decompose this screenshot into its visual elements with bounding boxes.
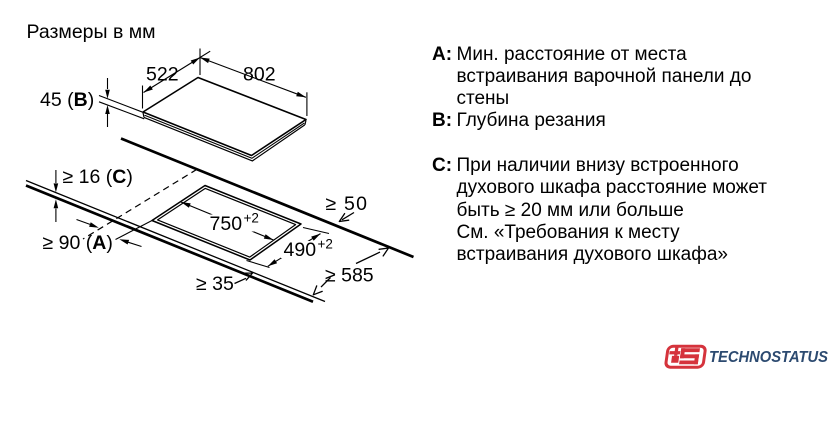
- svg-text:490: 490: [284, 239, 317, 261]
- svg-text:≥ 90 (A): ≥ 90 (A): [43, 232, 113, 254]
- svg-text:802: 802: [243, 64, 276, 86]
- svg-text:TECHNOSTATUS: TECHNOSTATUS: [709, 349, 828, 366]
- svg-text:750: 750: [210, 213, 243, 235]
- svg-text:≥ 35: ≥ 35: [196, 273, 234, 295]
- svg-text:+2: +2: [318, 237, 333, 252]
- svg-text:≥ 585: ≥ 585: [325, 265, 374, 287]
- svg-text:+2: +2: [244, 211, 259, 226]
- svg-text:≥ 16 (C): ≥ 16 (C): [63, 166, 133, 188]
- svg-text:≥ 50: ≥ 50: [326, 193, 369, 215]
- svg-text:522: 522: [146, 64, 179, 86]
- svg-text:45 (B): 45 (B): [40, 89, 94, 111]
